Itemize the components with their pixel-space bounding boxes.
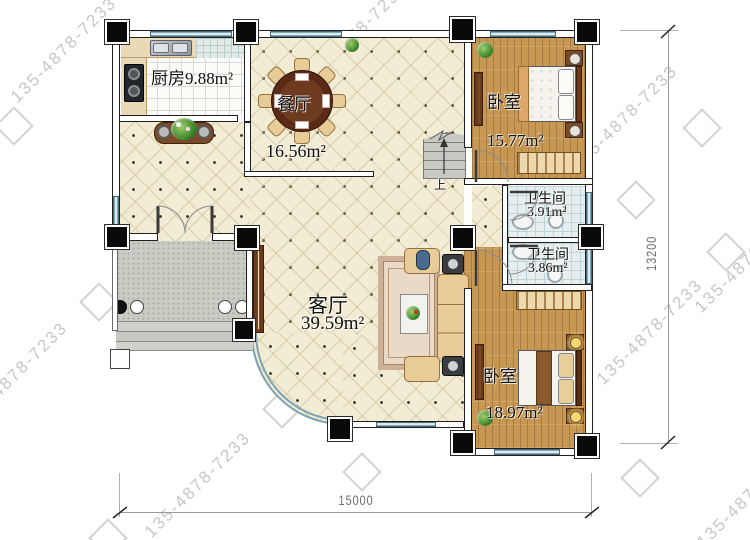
plant <box>477 42 493 58</box>
nightstand <box>565 122 583 138</box>
window <box>586 192 592 228</box>
column <box>577 436 597 456</box>
wall-dining-left <box>244 122 251 177</box>
column <box>107 22 127 42</box>
stove-burner <box>128 85 140 97</box>
bedroom-bottom-area-label: 18.97m² <box>486 403 543 423</box>
porch-step <box>116 321 253 331</box>
dimension-extension <box>620 30 678 31</box>
column <box>581 227 601 247</box>
wall-bedroom-top-left <box>464 38 472 148</box>
nightstand <box>566 408 584 424</box>
wall-dining-bottom <box>244 171 374 177</box>
window <box>113 196 119 226</box>
armchair <box>404 356 440 382</box>
living-area-label: 39.59m² <box>301 313 364 335</box>
wall-kitchen-dining <box>244 38 251 122</box>
dimension-extension <box>620 443 678 444</box>
table-lamp-icon <box>569 125 581 137</box>
bedroom-top-label: 卧室 <box>487 88 521 113</box>
nightstand <box>566 334 584 350</box>
porch-step <box>116 331 253 341</box>
bedroom-bottom-label: 卧室 <box>483 362 517 387</box>
place-setting <box>295 73 309 81</box>
column <box>453 433 473 453</box>
side-table-top <box>448 361 458 371</box>
side-table-top <box>448 259 458 269</box>
flower-plant <box>171 118 197 140</box>
wall-bedroom-top-bottom <box>464 178 593 185</box>
console-pot <box>157 125 171 139</box>
window <box>376 422 436 427</box>
column-white <box>110 349 130 369</box>
wall-bedroom-bottom-left <box>464 288 472 448</box>
kitchen-label: 厨房9.88m² <box>151 64 233 89</box>
wardrobe <box>517 152 581 174</box>
porch-step <box>116 341 253 351</box>
dimension-line-right <box>668 31 669 443</box>
dining-area-label: 16.56m² <box>266 141 326 162</box>
window <box>490 31 556 37</box>
wardrobe <box>516 291 582 310</box>
stove-burner <box>128 68 140 80</box>
window <box>270 31 342 37</box>
flower <box>186 127 190 131</box>
column <box>577 22 597 42</box>
bed-headboard <box>576 66 582 122</box>
dimension-extension <box>119 473 120 517</box>
column <box>330 419 350 439</box>
wall-porch-left <box>112 247 118 331</box>
pillow <box>558 353 574 378</box>
bed-headboard <box>576 350 582 406</box>
bay-window <box>251 333 343 425</box>
column <box>237 228 257 248</box>
window <box>494 449 560 455</box>
table-lamp-icon <box>570 411 582 423</box>
table-lamp-icon <box>570 337 582 349</box>
table-lamp-icon <box>569 53 581 65</box>
flower <box>176 122 181 127</box>
porch-pillar <box>130 300 144 314</box>
dining-label: 餐厅 <box>277 90 311 115</box>
window <box>150 31 232 37</box>
pillow <box>558 69 574 94</box>
pillow <box>558 379 574 404</box>
dimension-line-bottom <box>120 512 592 513</box>
dimension-value-right: 13200 <box>643 236 659 271</box>
column <box>452 19 473 40</box>
plant <box>345 38 359 52</box>
column <box>236 22 256 42</box>
wall-bath-bottom <box>502 284 592 291</box>
place-setting <box>295 121 309 129</box>
bath-bottom-area-label: 3.86m² <box>528 261 568 277</box>
person-figure <box>416 250 430 270</box>
column <box>235 321 253 339</box>
wall-between-baths <box>508 237 592 243</box>
porch-pillar <box>218 300 232 314</box>
column <box>107 227 127 247</box>
bath-top-area-label: 3.91m² <box>527 205 567 221</box>
window <box>586 248 592 284</box>
dimension-value-bottom: 15000 <box>316 492 396 508</box>
sink-basin <box>172 43 188 53</box>
column <box>453 228 473 248</box>
bedroom-top-area-label: 15.77m² <box>487 131 544 151</box>
tv-cabinet <box>253 245 264 333</box>
staircase <box>423 132 466 179</box>
tv-cabinet <box>474 72 483 126</box>
bed-blanket <box>536 351 552 405</box>
dimension-extension <box>591 473 592 517</box>
sink-basin <box>153 43 169 53</box>
stairs-direction-label: 上 <box>434 176 446 193</box>
floor-plan-image: 135-4878-7233 135-4878-7233 135-4878-723… <box>0 0 750 540</box>
coffee-table-plant <box>406 306 420 320</box>
coffee-table-flower <box>414 310 418 314</box>
place-setting <box>322 94 330 108</box>
sofa-group <box>374 244 470 384</box>
console-pot <box>197 125 211 139</box>
pillow <box>558 95 574 120</box>
nightstand <box>565 50 583 66</box>
